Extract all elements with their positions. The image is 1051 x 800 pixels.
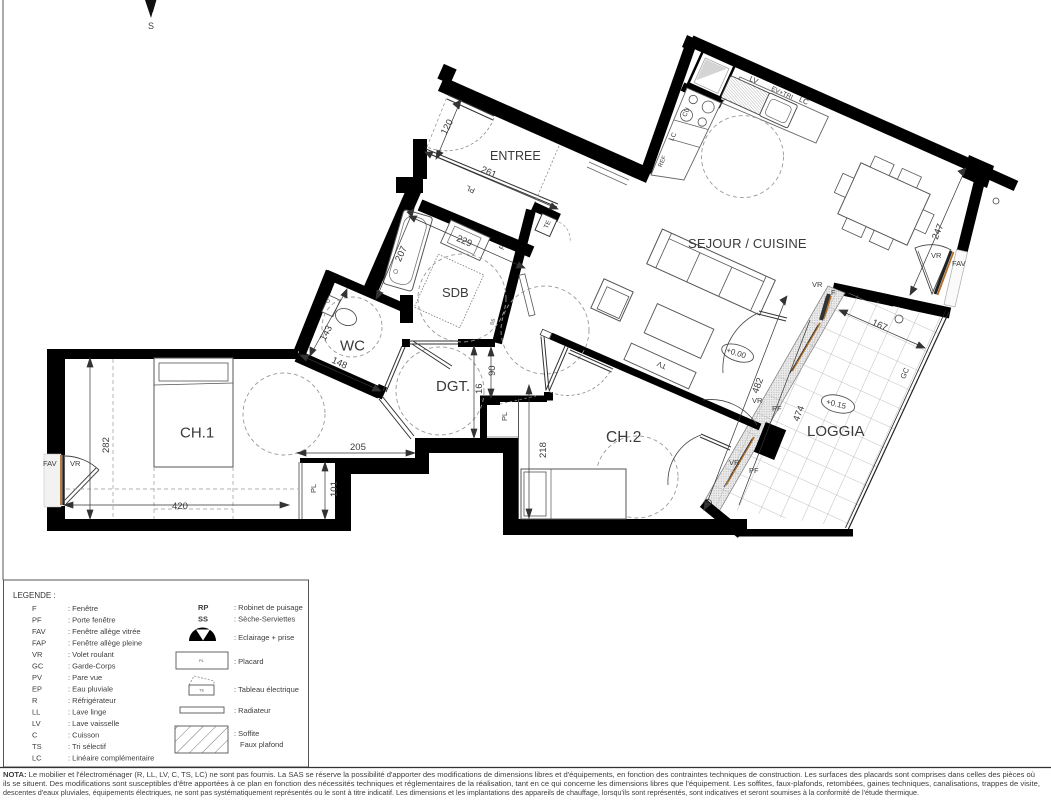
svg-text:FAV: FAV xyxy=(32,627,46,636)
svg-text:RP: RP xyxy=(198,603,208,612)
svg-text:LC: LC xyxy=(32,754,42,763)
svg-text:: Garde-Corps: : Garde-Corps xyxy=(68,662,116,671)
svg-text:420: 420 xyxy=(172,501,188,512)
svg-text:TS: TS xyxy=(32,742,42,751)
svg-text:Faux plafond: Faux plafond xyxy=(240,740,283,749)
svg-text:PV: PV xyxy=(32,673,42,682)
svg-text:PF: PF xyxy=(32,616,42,625)
svg-text:DGT.: DGT. xyxy=(436,378,470,395)
svg-text:PF: PF xyxy=(749,466,759,475)
svg-text:SDB: SDB xyxy=(442,285,469,300)
svg-text:VR: VR xyxy=(70,459,81,468)
svg-text:: Réfrigérateur: : Réfrigérateur xyxy=(68,696,116,705)
svg-text:descentes d'eaux pluviales, éq: descentes d'eaux pluviales, équipements … xyxy=(3,790,919,797)
svg-text:LL: LL xyxy=(32,708,40,717)
svg-text:SEJOUR / CUISINE: SEJOUR / CUISINE xyxy=(688,236,807,251)
svg-text:S: S xyxy=(148,21,154,31)
svg-text:VR: VR xyxy=(752,396,763,405)
svg-text:FAV: FAV xyxy=(952,259,966,268)
svg-text:: Fenêtre: : Fenêtre xyxy=(68,604,98,613)
svg-text:PL: PL xyxy=(309,484,318,493)
svg-text:: Soffite: : Soffite xyxy=(234,729,259,738)
svg-text:CH.2: CH.2 xyxy=(606,429,641,446)
svg-text:R: R xyxy=(32,696,38,705)
svg-text:VR: VR xyxy=(32,650,43,659)
svg-text:: Pare vue: : Pare vue xyxy=(68,673,102,682)
svg-text:FAP: FAP xyxy=(32,639,46,648)
svg-text:16: 16 xyxy=(474,383,485,394)
svg-text:PF: PF xyxy=(772,404,782,413)
svg-text:VR: VR xyxy=(931,251,942,260)
svg-text:: Lave vaisselle: : Lave vaisselle xyxy=(68,719,119,728)
svg-text:205: 205 xyxy=(350,442,366,453)
svg-text:FAV: FAV xyxy=(43,459,57,468)
svg-text:: Eau pluviale: : Eau pluviale xyxy=(68,685,113,694)
svg-text:GC: GC xyxy=(32,662,44,671)
svg-text:: Fenêtre allège pleine: : Fenêtre allège pleine xyxy=(68,639,142,648)
svg-text:218: 218 xyxy=(538,442,549,458)
svg-text:: Tableau électrique: : Tableau électrique xyxy=(234,685,299,694)
svg-text:NOTA: Le mobilier et l'électr: NOTA: Le mobilier et l'électroménager (R… xyxy=(3,772,1035,779)
svg-text:VR: VR xyxy=(812,280,823,289)
svg-text:: Radiateur: : Radiateur xyxy=(234,706,271,715)
svg-text:: Tri sélectif: : Tri sélectif xyxy=(68,742,107,751)
svg-text:: Lave linge: : Lave linge xyxy=(68,708,106,717)
svg-text:: Porte fenêtre: : Porte fenêtre xyxy=(68,616,116,625)
svg-text:LOGGIA: LOGGIA xyxy=(807,423,865,440)
svg-text:: Robinet de puisage: : Robinet de puisage xyxy=(234,603,303,612)
svg-text:CH.1: CH.1 xyxy=(180,425,214,442)
svg-text:WC: WC xyxy=(340,338,365,355)
svg-text:: Linéaire complémentaire: : Linéaire complémentaire xyxy=(68,754,154,763)
svg-text:ils se situent. Des modificati: ils se situent. Des modifications sont s… xyxy=(3,781,1040,788)
svg-text:SS: SS xyxy=(198,615,208,624)
svg-text:C: C xyxy=(32,731,38,740)
svg-text:101: 101 xyxy=(329,481,340,497)
svg-text:LV: LV xyxy=(32,719,41,728)
svg-text:F: F xyxy=(32,604,37,613)
svg-text:: Placard: : Placard xyxy=(234,657,264,666)
svg-text:ENTREE: ENTREE xyxy=(490,149,541,163)
svg-text:EP: EP xyxy=(32,685,42,694)
svg-text:90: 90 xyxy=(487,365,498,376)
svg-text:282: 282 xyxy=(101,437,112,453)
svg-text:TE: TE xyxy=(199,688,204,693)
svg-text:: Eclairage + prise: : Eclairage + prise xyxy=(234,633,294,642)
svg-text:PL: PL xyxy=(199,658,205,663)
svg-text:VR: VR xyxy=(729,458,740,467)
svg-text:F: F xyxy=(831,288,836,297)
svg-text:LEGENDE :: LEGENDE : xyxy=(13,591,56,600)
svg-text:: Fenêtre allège vitrée: : Fenêtre allège vitrée xyxy=(68,627,141,636)
svg-text:: Sèche-Serviettes: : Sèche-Serviettes xyxy=(234,615,296,624)
svg-text:: Volet roulant: : Volet roulant xyxy=(68,650,115,659)
svg-text:: Cuisson: : Cuisson xyxy=(68,731,99,740)
svg-text:PL: PL xyxy=(500,412,509,421)
